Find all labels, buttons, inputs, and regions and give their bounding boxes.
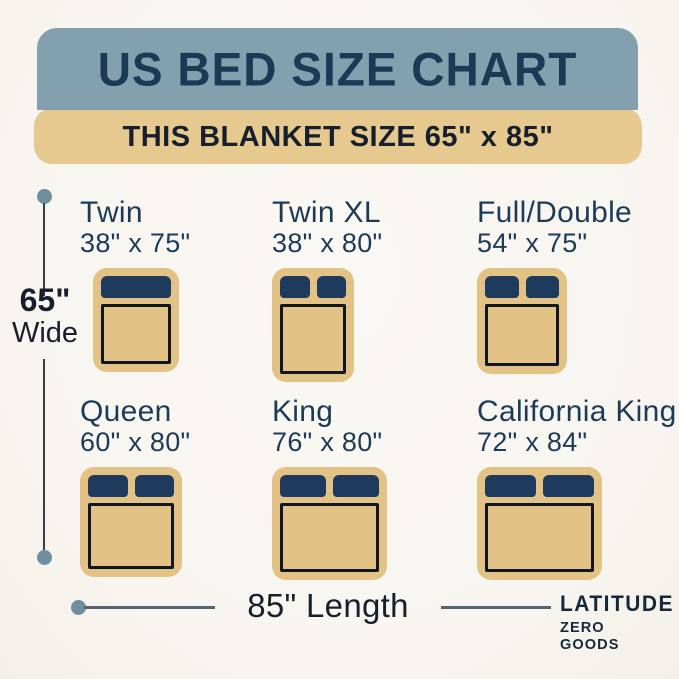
length-ruler-line-left — [84, 606, 215, 609]
chart-header: US BED SIZE CHART — [37, 28, 638, 110]
bed-card-california-king: California King 72" x 84" — [477, 396, 677, 580]
full-double-bed-icon — [477, 268, 567, 374]
queen-bed-icon — [80, 467, 182, 577]
brand-logo: LATITUDE ZERO GOODS — [560, 591, 670, 653]
bed-name: King — [272, 396, 387, 427]
mattress-icon — [101, 304, 171, 364]
bed-name: Twin XL — [272, 197, 382, 228]
width-dimension-label: 65" Wide — [6, 284, 84, 349]
pillow-row — [485, 475, 594, 497]
pillow-icon — [135, 475, 175, 497]
twin-xl-bed-icon — [272, 268, 354, 382]
pillow-icon — [485, 276, 519, 298]
bed-dimensions: 54" x 75" — [477, 229, 632, 257]
bed-name: Queen — [80, 396, 190, 427]
mattress-icon — [485, 503, 594, 572]
length-dimension-label: 85" Length — [215, 587, 441, 625]
bed-dimensions: 76" x 80" — [272, 428, 387, 456]
pillow-row — [88, 475, 174, 497]
pillow-icon — [280, 276, 310, 298]
bed-name: Full/Double — [477, 197, 632, 228]
mattress-icon — [280, 304, 346, 374]
bed-dimensions: 72" x 84" — [477, 428, 677, 456]
bed-dimensions: 38" x 80" — [272, 229, 382, 257]
mattress-icon — [280, 503, 379, 572]
ruler-dot-bottom — [37, 550, 52, 565]
pillow-icon — [333, 475, 379, 497]
brand-name: LATITUDE — [560, 591, 665, 617]
bed-name: California King — [477, 396, 677, 427]
california-king-bed-icon — [477, 467, 602, 580]
length-ruler-line-right — [441, 606, 551, 609]
pillow-row — [280, 276, 346, 298]
ruler-dot-top — [37, 189, 52, 204]
mattress-icon — [88, 503, 174, 569]
king-bed-icon — [272, 467, 387, 580]
bed-card-queen: Queen 60" x 80" — [80, 396, 190, 577]
bed-card-twin: Twin 38" x 75" — [80, 197, 190, 372]
pillow-row — [485, 276, 559, 298]
pillow-row — [101, 276, 171, 298]
bed-card-twin-xl: Twin XL 38" x 80" — [272, 197, 382, 382]
mattress-icon — [485, 304, 559, 366]
bed-card-full-double: Full/Double 54" x 75" — [477, 197, 632, 374]
twin-bed-icon — [93, 268, 179, 372]
pillow-icon — [543, 475, 594, 497]
bed-dimensions: 38" x 75" — [80, 229, 190, 257]
bed-dimensions: 60" x 80" — [80, 428, 190, 456]
width-word: Wide — [6, 317, 84, 349]
page-title: US BED SIZE CHART — [98, 41, 578, 96]
bed-card-king: King 76" x 80" — [272, 396, 387, 580]
blanket-size-text: THIS BLANKET SIZE 65" x 85" — [123, 119, 554, 154]
brand-tagline: ZERO GOODS — [560, 619, 667, 653]
pillow-icon — [88, 475, 128, 497]
pillow-icon — [485, 475, 536, 497]
bed-size-chart: THIS BLANKET SIZE 65" x 85" US BED SIZE … — [0, 0, 679, 679]
blanket-size-banner: THIS BLANKET SIZE 65" x 85" — [34, 108, 642, 164]
pillow-icon — [526, 276, 560, 298]
width-value: 65" — [6, 284, 84, 317]
bed-name: Twin — [80, 197, 190, 228]
pillow-row — [280, 475, 379, 497]
pillow-icon — [101, 276, 171, 298]
width-ruler-line-lower — [43, 359, 45, 551]
pillow-icon — [280, 475, 326, 497]
pillow-icon — [317, 276, 347, 298]
